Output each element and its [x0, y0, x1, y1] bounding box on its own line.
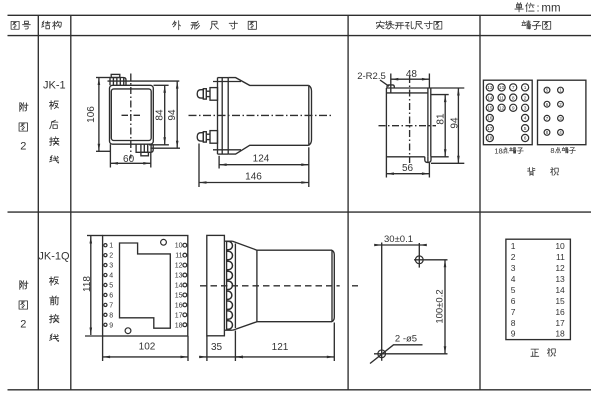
svg-text:12: 12: [175, 263, 183, 270]
svg-text:30±0.1: 30±0.1: [384, 234, 413, 245]
svg-text:3: 3: [511, 263, 516, 273]
svg-text:11: 11: [499, 95, 504, 101]
svg-text:11: 11: [175, 253, 182, 260]
svg-text:18: 18: [175, 322, 183, 329]
svg-text:18: 18: [487, 136, 493, 142]
svg-text:84: 84: [154, 109, 165, 121]
svg-text:6: 6: [511, 296, 516, 306]
svg-text:7: 7: [109, 302, 113, 309]
svg-text:6: 6: [109, 292, 113, 299]
svg-text:100±0.2: 100±0.2: [434, 289, 445, 323]
svg-text:10: 10: [499, 85, 505, 91]
svg-text:6: 6: [524, 136, 527, 142]
svg-text:5: 5: [511, 285, 516, 295]
svg-text:1: 1: [109, 243, 113, 250]
svg-text:8: 8: [550, 146, 554, 155]
svg-text:15: 15: [175, 292, 183, 299]
svg-text:16: 16: [175, 302, 183, 309]
svg-text:11: 11: [556, 252, 565, 262]
svg-text:8: 8: [511, 318, 516, 328]
svg-text:17: 17: [175, 312, 183, 319]
svg-text:9: 9: [512, 106, 515, 112]
svg-text:17: 17: [555, 318, 565, 328]
svg-text:13: 13: [555, 274, 565, 284]
svg-text:JK-1Q: JK-1Q: [38, 251, 70, 263]
svg-text:48: 48: [406, 69, 418, 80]
svg-text:94: 94: [167, 109, 178, 121]
svg-text:121: 121: [272, 342, 289, 353]
svg-text:1: 1: [511, 241, 516, 251]
svg-text:118: 118: [82, 276, 93, 292]
svg-text:10: 10: [175, 243, 183, 250]
svg-text:12: 12: [499, 106, 505, 112]
svg-text:2: 2: [511, 252, 516, 262]
svg-text:13: 13: [175, 273, 183, 280]
svg-text:17: 17: [487, 126, 493, 132]
svg-text:146: 146: [245, 171, 262, 182]
svg-text:2: 2: [20, 141, 26, 153]
svg-text:4: 4: [524, 116, 527, 122]
svg-text:4: 4: [511, 274, 516, 284]
svg-text:9: 9: [109, 322, 113, 329]
svg-text:16: 16: [555, 307, 565, 317]
svg-text:124: 124: [253, 154, 270, 165]
svg-text:14: 14: [555, 285, 565, 295]
svg-text:8: 8: [109, 312, 113, 319]
svg-text:18: 18: [555, 329, 565, 339]
svg-text:35: 35: [211, 342, 223, 353]
svg-text:14: 14: [487, 95, 493, 101]
svg-text:4: 4: [109, 273, 113, 280]
svg-text:5: 5: [109, 283, 113, 290]
svg-text:15: 15: [555, 296, 565, 306]
svg-text:94: 94: [449, 117, 460, 129]
svg-text:16: 16: [487, 116, 493, 122]
svg-text:10: 10: [555, 241, 565, 251]
svg-text:102: 102: [139, 341, 156, 352]
svg-text:2-R2.5: 2-R2.5: [357, 71, 386, 82]
svg-text:2: 2: [20, 319, 26, 331]
svg-text:7: 7: [512, 85, 515, 91]
svg-text::: :: [536, 3, 539, 15]
svg-text:56: 56: [402, 163, 414, 174]
svg-text:15: 15: [487, 106, 493, 112]
svg-text:9: 9: [511, 329, 516, 339]
svg-text:14: 14: [175, 283, 183, 290]
svg-text:3: 3: [524, 106, 527, 112]
svg-text:1: 1: [524, 85, 527, 91]
svg-text:2: 2: [109, 253, 113, 260]
svg-text:JK-1: JK-1: [43, 80, 66, 92]
svg-text:60: 60: [123, 154, 135, 165]
svg-text:5: 5: [524, 126, 527, 132]
svg-text:81: 81: [435, 113, 446, 125]
svg-text:2: 2: [524, 95, 527, 101]
svg-text:mm: mm: [541, 3, 560, 15]
svg-text:106: 106: [86, 106, 97, 123]
svg-text:2 -ø5: 2 -ø5: [395, 334, 417, 345]
svg-text:3: 3: [109, 263, 113, 270]
svg-text:18: 18: [494, 146, 502, 155]
svg-text:7: 7: [511, 307, 516, 317]
svg-text:13: 13: [487, 85, 493, 91]
svg-text:8: 8: [512, 95, 515, 101]
svg-text:12: 12: [555, 263, 565, 273]
